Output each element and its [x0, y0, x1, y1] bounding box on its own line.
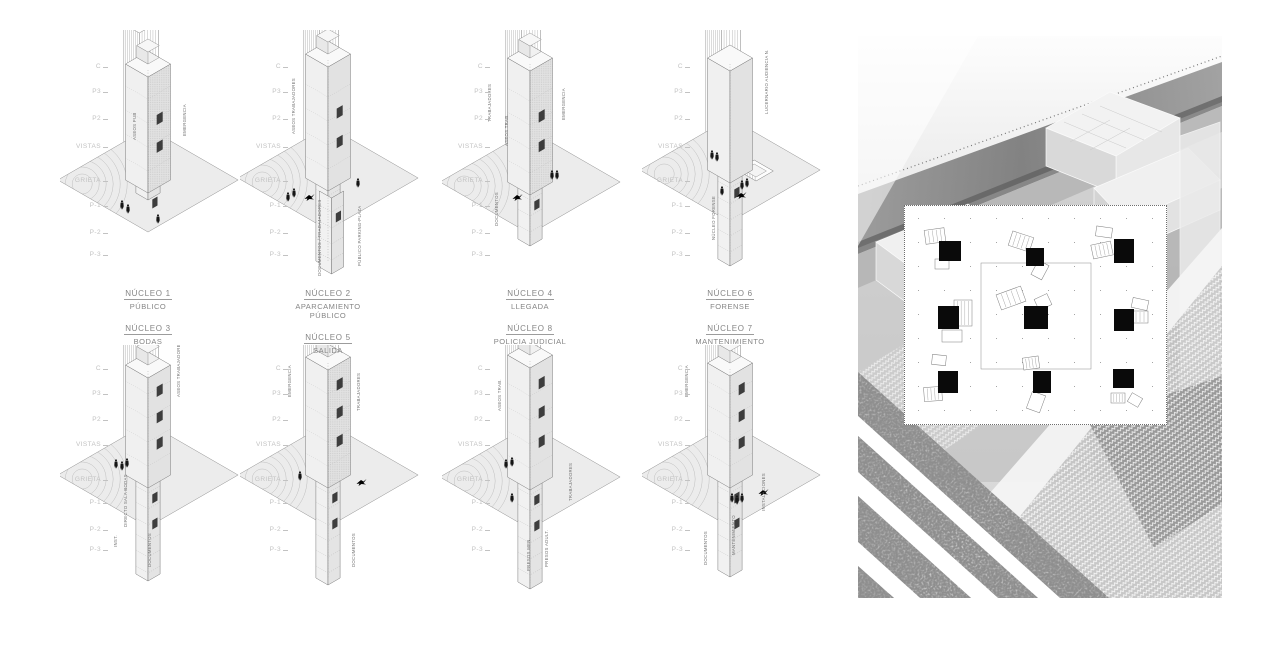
level-label-p2: P2	[442, 417, 490, 424]
level-label-p2: P2	[642, 116, 690, 123]
level-label-text: P-1	[472, 500, 483, 507]
level-label-text: P-1	[90, 500, 101, 507]
level-label-p-1: P-1	[60, 500, 108, 507]
level-tick	[485, 394, 490, 395]
diagram-column-2: ASEOS TRABAJADORESDOCUMENTOS / TRABAJADO…	[240, 0, 430, 646]
level-label-p-2: P-2	[60, 230, 108, 237]
nucleo-4-annotation: EMERGENCIA	[561, 88, 566, 120]
level-label-p-2: P-2	[642, 230, 690, 237]
level-label-text: P-1	[672, 203, 683, 210]
level-label-p-1: P-1	[442, 203, 490, 210]
level-label-text: P-3	[270, 547, 281, 554]
floor-plan-inset	[904, 205, 1167, 425]
level-tick	[685, 206, 690, 207]
level-label-text: P-1	[90, 203, 101, 210]
nucleo-5-title: NÚCLEO 5SALIDA	[240, 327, 416, 355]
level-tick	[103, 394, 108, 395]
level-tick	[485, 255, 490, 256]
level-tick	[283, 206, 288, 207]
nucleo-7-annotation: INSTALACIONES	[761, 473, 766, 511]
level-label-p-3: P-3	[60, 252, 108, 259]
level-tick	[685, 147, 690, 148]
nucleo-4-title: NÚCLEO 4LLEGADA	[442, 283, 618, 311]
level-label-text: P3	[272, 89, 281, 96]
column-2-titles: NÚCLEO 2APARCAMIENTO PÚBLICONÚCLEO 5SALI…	[240, 283, 416, 362]
level-tick	[283, 369, 288, 370]
level-label-p-3: P-3	[442, 547, 490, 554]
level-label-text: P3	[92, 391, 101, 398]
floor-plan-drawing	[905, 206, 1166, 424]
level-label-text: P2	[674, 417, 683, 424]
level-label-text: P-3	[90, 547, 101, 554]
level-label-c: C	[240, 64, 288, 71]
nucleo-5-diagram: EMERGENCIATRABAJADORESDOCUMENTOSCP3P2VIS…	[240, 345, 430, 623]
nucleo-3-axonometric: ASEOS TRABAJADORESDIRECTO SALA BODASINST…	[60, 345, 250, 623]
level-tick	[283, 480, 288, 481]
level-label-vistas: VISTAS	[60, 144, 108, 151]
level-label-p2: P2	[442, 116, 490, 123]
level-label-p-2: P-2	[60, 527, 108, 534]
level-tick	[283, 530, 288, 531]
level-tick	[685, 480, 690, 481]
level-tick	[103, 445, 108, 446]
level-label-p3: P3	[60, 391, 108, 398]
level-tick	[103, 480, 108, 481]
level-tick	[485, 420, 490, 421]
nucleo-7-annotation: MANTENIMIENTO	[731, 515, 736, 555]
level-tick	[283, 255, 288, 256]
nucleo-7-title-main: NÚCLEO 7	[706, 324, 754, 335]
model-photo	[858, 36, 1222, 598]
nucleo-6-annotation: NÚCLEO FORENSE	[711, 196, 716, 240]
nucleo-2-title-main: NÚCLEO 2	[304, 289, 352, 300]
level-label-text: VISTAS	[458, 144, 483, 151]
nucleo-8-annotation: TRABAJADORES	[568, 463, 573, 501]
nucleo-3-title-sub: BODAS	[100, 337, 196, 346]
level-label-p3: P3	[442, 89, 490, 96]
diagram-column-3: TRABAJADORESASEOS TRAB.EMERGENCIADOCUMEN…	[442, 0, 632, 646]
nucleo-2-annotation: PÚBLICO PARKING-PLAZA	[357, 206, 362, 266]
level-label-p3: P3	[240, 391, 288, 398]
nucleo-1-title-main: NÚCLEO 1	[124, 289, 172, 300]
level-label-c: C	[642, 64, 690, 71]
level-label-text: C	[478, 64, 483, 71]
nucleo-1-title: NÚCLEO 1PÚBLICO	[60, 283, 236, 311]
level-tick	[485, 480, 490, 481]
level-label-vistas: VISTAS	[240, 144, 288, 151]
level-tick	[685, 530, 690, 531]
level-tick	[485, 550, 490, 551]
level-tick	[685, 67, 690, 68]
level-label-text: VISTAS	[658, 144, 683, 151]
level-label-text: P-2	[90, 230, 101, 237]
nucleo-5-annotation: DOCUMENTOS	[351, 533, 356, 567]
level-label-c: C	[442, 366, 490, 373]
level-label-text: P-1	[270, 500, 281, 507]
level-label-text: C	[276, 64, 281, 71]
level-label-vistas: VISTAS	[642, 144, 690, 151]
nucleo-8-annotation: PRESOS ADULT.	[544, 530, 549, 567]
level-label-grieta: GRIETA	[642, 477, 690, 484]
level-label-c: C	[60, 366, 108, 373]
level-label-vistas: VISTAS	[442, 144, 490, 151]
level-label-text: VISTAS	[658, 442, 683, 449]
level-label-p3: P3	[442, 391, 490, 398]
level-label-p-3: P-3	[240, 252, 288, 259]
level-label-text: GRIETA	[457, 477, 483, 484]
level-label-text: P-2	[672, 230, 683, 237]
level-label-grieta: GRIETA	[642, 178, 690, 185]
level-label-p-1: P-1	[442, 500, 490, 507]
level-label-c: C	[60, 64, 108, 71]
level-label-text: VISTAS	[76, 442, 101, 449]
drawing-sheet: ASEOS PUBEMERGENCIACP3P2VISTASGRIETAP-1P…	[0, 0, 1280, 646]
level-tick	[485, 147, 490, 148]
level-label-grieta: GRIETA	[60, 477, 108, 484]
level-tick	[283, 550, 288, 551]
level-label-text: GRIETA	[75, 178, 101, 185]
level-tick	[485, 530, 490, 531]
level-label-text: VISTAS	[76, 144, 101, 151]
level-tick	[685, 181, 690, 182]
level-label-text: GRIETA	[255, 178, 281, 185]
level-label-text: P-1	[472, 203, 483, 210]
level-tick	[485, 503, 490, 504]
nucleo-4-annotation: ASEOS TRAB.	[504, 114, 509, 146]
level-tick	[103, 503, 108, 504]
diagram-column-1: ASEOS PUBEMERGENCIACP3P2VISTASGRIETAP-1P…	[60, 0, 250, 646]
nucleo-2-title: NÚCLEO 2APARCAMIENTO PÚBLICO	[240, 283, 416, 320]
level-label-text: P-3	[472, 252, 483, 259]
level-label-p3: P3	[60, 89, 108, 96]
level-label-text: P-2	[270, 527, 281, 534]
level-label-p-2: P-2	[642, 527, 690, 534]
nucleo-2-annotation: DOCUMENTOS / TRABAJADORES	[317, 199, 322, 276]
column-4-titles: NÚCLEO 6FORENSENÚCLEO 7MANTENIMIENTO	[642, 283, 818, 353]
level-label-text: P2	[474, 116, 483, 123]
level-tick	[485, 119, 490, 120]
level-label-text: C	[478, 366, 483, 373]
level-tick	[485, 181, 490, 182]
level-label-c: C	[442, 64, 490, 71]
level-tick	[283, 445, 288, 446]
nucleo-3-title-main: NÚCLEO 3	[124, 324, 172, 335]
level-label-text: P-1	[270, 203, 281, 210]
level-tick	[283, 420, 288, 421]
level-label-text: P3	[674, 89, 683, 96]
level-label-p-3: P-3	[642, 547, 690, 554]
level-tick	[485, 92, 490, 93]
level-label-text: P2	[272, 417, 281, 424]
nucleo-6-title-main: NÚCLEO 6	[706, 289, 754, 300]
nucleo-2-annotation: ASEOS TRABAJADORES	[291, 78, 296, 134]
level-label-p-1: P-1	[642, 500, 690, 507]
level-label-grieta: GRIETA	[240, 477, 288, 484]
level-label-text: C	[96, 64, 101, 71]
nucleo-7-diagram: EMERGENCIADOCUMENTOSMANTENIMIENTOINSTALA…	[642, 345, 832, 623]
level-label-text: P-2	[472, 230, 483, 237]
level-label-text: P2	[92, 116, 101, 123]
nucleo-1-annotation: ASEOS PUB	[132, 112, 137, 140]
level-tick	[283, 181, 288, 182]
level-label-p-1: P-1	[642, 203, 690, 210]
level-tick	[103, 530, 108, 531]
level-label-p-3: P-3	[240, 547, 288, 554]
level-tick	[485, 233, 490, 234]
level-label-grieta: GRIETA	[442, 178, 490, 185]
level-label-p-1: P-1	[240, 203, 288, 210]
nucleo-3-annotation: DOCUMENTOS	[147, 533, 152, 567]
level-label-text: GRIETA	[457, 178, 483, 185]
level-tick	[103, 119, 108, 120]
diagram-column-4: LUCERNARIO AUDIENCIA N.NÚCLEO FORENSECP3…	[642, 0, 832, 646]
level-label-vistas: VISTAS	[240, 442, 288, 449]
nucleo-6-title: NÚCLEO 6FORENSE	[642, 283, 818, 311]
nucleo-4-title-main: NÚCLEO 4	[506, 289, 554, 300]
level-tick	[103, 92, 108, 93]
level-tick	[485, 67, 490, 68]
level-label-c: C	[642, 366, 690, 373]
level-tick	[103, 550, 108, 551]
nucleo-8-axonometric: ASEOS TRAB.TRABAJADORESPRESOS MEN.PRESOS…	[442, 345, 632, 623]
nucleo-8-annotation: PRESOS MEN.	[526, 538, 531, 571]
nucleo-2-title-sub: APARCAMIENTO PÚBLICO	[280, 302, 376, 320]
nucleo-8-title-main: NÚCLEO 8	[506, 324, 554, 335]
level-tick	[103, 255, 108, 256]
level-label-p-3: P-3	[642, 252, 690, 259]
level-label-p-2: P-2	[240, 230, 288, 237]
level-label-text: P-3	[472, 547, 483, 554]
level-label-p3: P3	[642, 391, 690, 398]
nucleo-1-annotation: EMERGENCIA	[182, 104, 187, 136]
level-tick	[283, 119, 288, 120]
level-tick	[283, 67, 288, 68]
level-label-text: P2	[674, 116, 683, 123]
nucleo-3-annotation: INST.	[113, 535, 118, 547]
level-label-p-3: P-3	[60, 547, 108, 554]
level-label-text: VISTAS	[256, 144, 281, 151]
nucleo-8-title-sub: POLICIA JUDICIAL	[482, 337, 578, 346]
nucleo-8-diagram: ASEOS TRAB.TRABAJADORESPRESOS MEN.PRESOS…	[442, 345, 632, 623]
nucleo-8-annotation: ASEOS TRAB.	[497, 379, 502, 411]
level-label-text: GRIETA	[657, 178, 683, 185]
level-label-text: P-2	[90, 527, 101, 534]
level-tick	[685, 394, 690, 395]
level-tick	[685, 550, 690, 551]
nucleo-7-title-sub: MANTENIMIENTO	[682, 337, 778, 346]
level-label-text: C	[678, 366, 683, 373]
level-label-c: C	[240, 366, 288, 373]
level-tick	[283, 147, 288, 148]
level-label-text: VISTAS	[256, 442, 281, 449]
level-tick	[103, 206, 108, 207]
level-tick	[283, 92, 288, 93]
level-tick	[685, 233, 690, 234]
level-tick	[685, 119, 690, 120]
nucleo-5-title-main: NÚCLEO 5	[304, 333, 352, 344]
nucleo-5-title-sub: SALIDA	[280, 346, 376, 355]
level-label-p2: P2	[60, 116, 108, 123]
level-label-text: P2	[92, 417, 101, 424]
level-tick	[283, 503, 288, 504]
level-label-text: C	[96, 366, 101, 373]
nucleo-3-annotation: DIRECTO SALA BODAS	[123, 474, 128, 527]
level-label-text: P-2	[270, 230, 281, 237]
nucleo-7-axonometric: EMERGENCIADOCUMENTOSMANTENIMIENTOINSTALA…	[642, 345, 832, 623]
nucleo-2-diagram: ASEOS TRABAJADORESDOCUMENTOS / TRABAJADO…	[240, 30, 430, 282]
level-label-text: P2	[272, 116, 281, 123]
level-label-text: P3	[92, 89, 101, 96]
nucleo-1-title-sub: PÚBLICO	[100, 302, 196, 311]
level-tick	[485, 206, 490, 207]
level-label-text: C	[678, 64, 683, 71]
level-label-text: P3	[474, 89, 483, 96]
level-label-p-2: P-2	[240, 527, 288, 534]
nucleo-6-title-sub: FORENSE	[682, 302, 778, 311]
level-label-p2: P2	[60, 417, 108, 424]
level-label-text: GRIETA	[75, 477, 101, 484]
level-label-p-1: P-1	[240, 500, 288, 507]
nucleo-5-axonometric: EMERGENCIATRABAJADORESDOCUMENTOS	[240, 345, 430, 623]
level-label-text: P3	[674, 391, 683, 398]
level-label-text: P-3	[90, 252, 101, 259]
nucleo-5-annotation: TRABAJADORES	[356, 373, 361, 411]
nucleo-6-annotation: LUCERNARIO AUDIENCIA N.	[764, 49, 769, 114]
level-tick	[103, 420, 108, 421]
level-label-text: C	[276, 366, 281, 373]
level-label-p-3: P-3	[442, 252, 490, 259]
level-label-text: P2	[474, 417, 483, 424]
level-label-text: P-3	[672, 252, 683, 259]
level-tick	[103, 147, 108, 148]
level-tick	[685, 420, 690, 421]
level-tick	[485, 445, 490, 446]
nucleo-4-diagram: TRABAJADORESASEOS TRAB.EMERGENCIADOCUMEN…	[442, 30, 632, 282]
level-label-p2: P2	[240, 116, 288, 123]
nucleo-3-title: NÚCLEO 3BODAS	[60, 318, 236, 346]
level-label-p3: P3	[642, 89, 690, 96]
level-label-grieta: GRIETA	[442, 477, 490, 484]
nucleo-7-title: NÚCLEO 7MANTENIMIENTO	[642, 318, 818, 346]
level-label-text: P3	[474, 391, 483, 398]
column-1-titles: NÚCLEO 1PÚBLICONÚCLEO 3BODAS	[60, 283, 236, 353]
level-tick	[685, 503, 690, 504]
level-label-text: VISTAS	[458, 442, 483, 449]
level-tick	[103, 67, 108, 68]
level-tick	[103, 181, 108, 182]
level-label-text: P-3	[270, 252, 281, 259]
nucleo-6-diagram: LUCERNARIO AUDIENCIA N.NÚCLEO FORENSECP3…	[642, 30, 832, 282]
column-3-titles: NÚCLEO 4LLEGADANÚCLEO 8POLICIA JUDICIAL	[442, 283, 618, 353]
nucleo-4-annotation: DOCUMENTOS	[494, 192, 499, 226]
level-label-p3: P3	[240, 89, 288, 96]
level-tick	[283, 394, 288, 395]
level-label-grieta: GRIETA	[60, 178, 108, 185]
level-label-vistas: VISTAS	[442, 442, 490, 449]
level-tick	[283, 233, 288, 234]
level-label-p-2: P-2	[442, 230, 490, 237]
level-label-text: P-2	[472, 527, 483, 534]
level-label-vistas: VISTAS	[642, 442, 690, 449]
nucleo-7-annotation: DOCUMENTOS	[703, 531, 708, 565]
level-label-p-1: P-1	[60, 203, 108, 210]
level-label-p-2: P-2	[442, 527, 490, 534]
level-label-text: P3	[272, 391, 281, 398]
level-label-p2: P2	[642, 417, 690, 424]
level-tick	[685, 255, 690, 256]
level-label-grieta: GRIETA	[240, 178, 288, 185]
level-label-text: GRIETA	[255, 477, 281, 484]
level-label-text: P-2	[672, 527, 683, 534]
nucleo-3-diagram: ASEOS TRABAJADORESDIRECTO SALA BODASINST…	[60, 345, 250, 623]
level-tick	[103, 369, 108, 370]
nucleo-1-diagram: ASEOS PUBEMERGENCIACP3P2VISTASGRIETAP-1P…	[60, 30, 250, 282]
level-tick	[485, 369, 490, 370]
level-label-text: P-1	[672, 500, 683, 507]
level-tick	[685, 445, 690, 446]
level-label-vistas: VISTAS	[60, 442, 108, 449]
level-label-p2: P2	[240, 417, 288, 424]
nucleo-8-title: NÚCLEO 8POLICIA JUDICIAL	[442, 318, 618, 346]
level-tick	[103, 233, 108, 234]
level-tick	[685, 92, 690, 93]
level-label-text: P-3	[672, 547, 683, 554]
nucleo-4-title-sub: LLEGADA	[482, 302, 578, 311]
level-tick	[685, 369, 690, 370]
level-label-text: GRIETA	[657, 477, 683, 484]
